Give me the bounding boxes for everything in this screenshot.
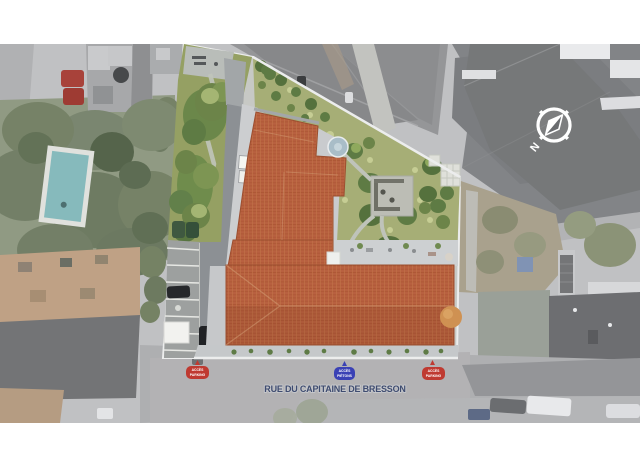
svg-text:ACCÈS: ACCÈS bbox=[428, 368, 441, 373]
svg-text:PARKING: PARKING bbox=[190, 373, 206, 377]
svg-text:ACCÈS: ACCÈS bbox=[339, 368, 352, 373]
svg-text:RUE DU CAPITAINE DE BRESSON: RUE DU CAPITAINE DE BRESSON bbox=[264, 384, 405, 394]
svg-text:ACCÈS: ACCÈS bbox=[192, 367, 205, 372]
svg-text:PIÉTONS: PIÉTONS bbox=[337, 373, 353, 378]
svg-text:PARKING: PARKING bbox=[426, 374, 442, 378]
